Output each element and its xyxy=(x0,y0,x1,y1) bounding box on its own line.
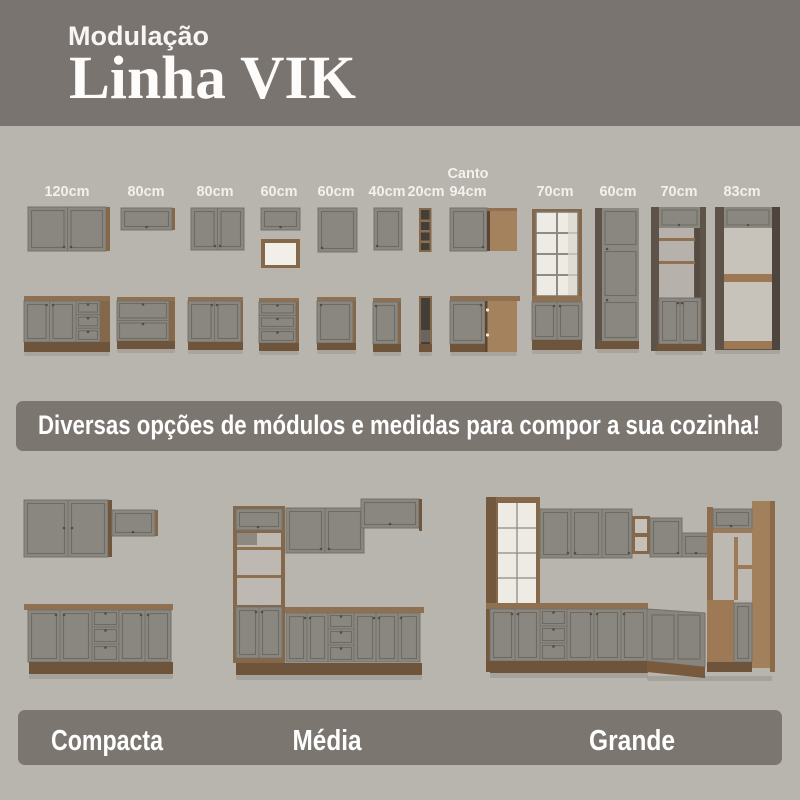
svg-text:60cm: 60cm xyxy=(317,184,354,200)
svg-text:60cm: 60cm xyxy=(260,184,297,200)
svg-text:Diversas opções de módulos e m: Diversas opções de módulos e medidas par… xyxy=(38,410,760,440)
svg-text:80cm: 80cm xyxy=(196,184,233,200)
svg-text:Linha VIK: Linha VIK xyxy=(69,45,356,112)
svg-text:80cm: 80cm xyxy=(127,184,164,200)
svg-text:40cm: 40cm xyxy=(368,184,405,200)
svg-text:70cm: 70cm xyxy=(660,184,697,200)
svg-text:120cm: 120cm xyxy=(44,184,89,200)
svg-text:83cm: 83cm xyxy=(723,184,760,200)
svg-text:Grande: Grande xyxy=(589,725,675,757)
svg-text:Canto: Canto xyxy=(447,166,488,182)
svg-text:Compacta: Compacta xyxy=(51,725,164,757)
svg-text:94cm: 94cm xyxy=(449,184,486,200)
svg-text:Média: Média xyxy=(293,725,363,757)
svg-text:20cm: 20cm xyxy=(407,184,444,200)
svg-text:70cm: 70cm xyxy=(536,184,573,200)
svg-text:60cm: 60cm xyxy=(599,184,636,200)
